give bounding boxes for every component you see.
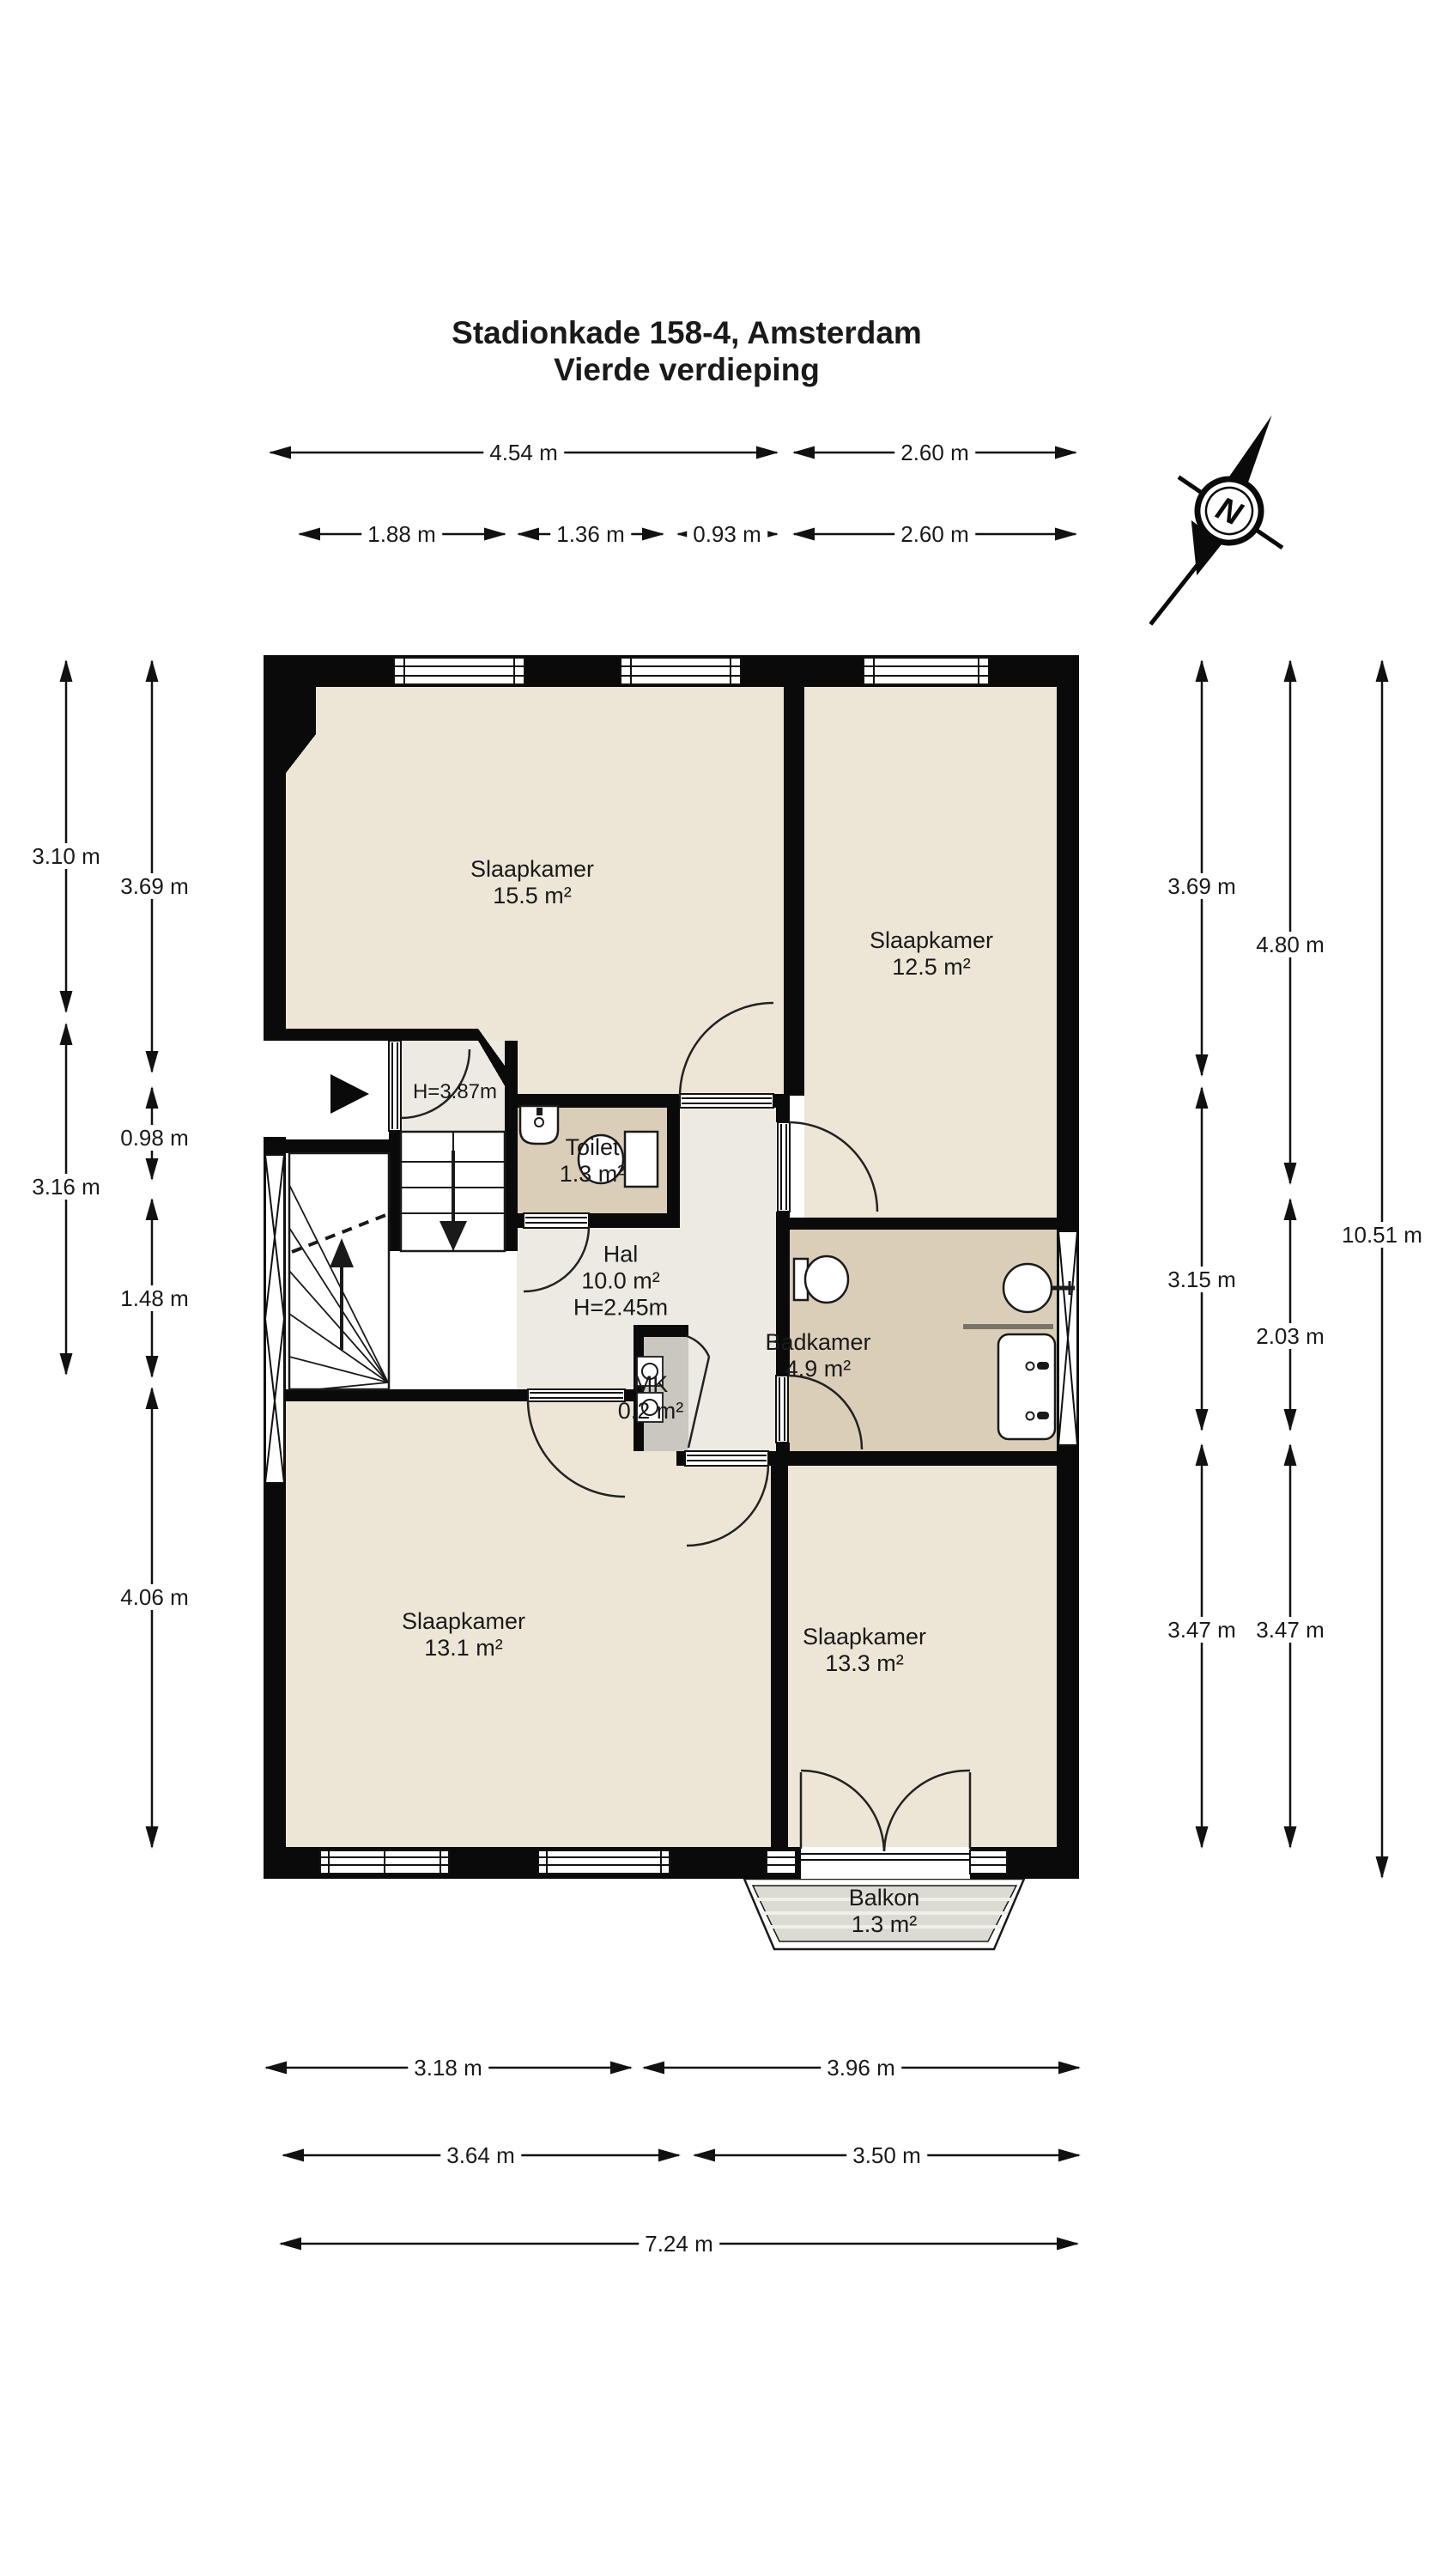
dim-left-369: 3.69 m: [114, 873, 195, 899]
room-height: H=2.45m: [573, 1295, 668, 1321]
bedroom-tr-door-frame: [778, 1122, 790, 1212]
bathroom-tub-icon: [998, 1334, 1055, 1439]
dim-top-136: 1.36 m: [550, 521, 631, 547]
compass-north-icon: N: [1119, 391, 1330, 660]
window-top-1: [394, 658, 524, 684]
dim-top-260b: 2.60 m: [894, 521, 975, 547]
room-name: MK: [618, 1371, 684, 1398]
balcony-door-opening: [801, 1847, 970, 1879]
window-bottom-4: [970, 1850, 1007, 1874]
dim-right-347a: 3.47 m: [1161, 1617, 1242, 1643]
dim-right-347b: 3.47 m: [1250, 1617, 1331, 1643]
room-label-mk: MK 0.2 m²: [618, 1371, 684, 1425]
dim-left-148: 1.48 m: [114, 1285, 195, 1311]
dim-right-315: 3.15 m: [1161, 1267, 1242, 1292]
dim-right-369: 3.69 m: [1161, 873, 1242, 899]
dim-right-480: 4.80 m: [1250, 932, 1331, 957]
dim-left-098: 0.98 m: [114, 1125, 195, 1151]
room-label-hal: Hal 10.0 m² H=2.45m: [573, 1242, 668, 1321]
room-area: 1.3 m²: [849, 1911, 920, 1938]
room-label-slaapkamer-tl: Slaapkamer 15.5 m²: [470, 856, 594, 909]
bedroom-tl-door-frame: [680, 1094, 773, 1108]
window-bottom-1: [320, 1850, 449, 1874]
front-door-frame: [389, 1041, 401, 1131]
room-area: 15.5 m²: [470, 883, 594, 909]
page-title: Stadionkade 158-4, Amsterdam: [452, 315, 922, 351]
window-left-shaft: [265, 1155, 284, 1483]
dim-top-188: 1.88 m: [361, 521, 442, 547]
window-bottom-2: [538, 1850, 670, 1874]
room-name: Slaapkamer: [470, 856, 594, 883]
room-label-slaapkamer-tr: Slaapkamer 12.5 m²: [870, 927, 993, 981]
bathroom-door-frame: [776, 1376, 788, 1443]
stair-height-annotation: H=3.87m: [413, 1080, 497, 1104]
room-name: Badkamer: [765, 1329, 870, 1356]
room-label-slaapkamer-bl: Slaapkamer 13.1 m²: [402, 1608, 525, 1662]
room-name: Hal: [573, 1242, 668, 1268]
page-subtitle: Vierde verdieping: [554, 352, 820, 388]
room-label-badkamer: Badkamer 4.9 m²: [765, 1329, 870, 1382]
room-name: Balkon: [849, 1885, 920, 1911]
room-area: 4.9 m²: [765, 1356, 870, 1382]
dim-top-260a: 2.60 m: [894, 440, 975, 465]
window-top-3: [864, 658, 989, 684]
room-area: 10.0 m²: [573, 1268, 668, 1295]
dim-right-203: 2.03 m: [1250, 1323, 1331, 1349]
toilet-door-frame: [524, 1213, 589, 1228]
window-right-shaft: [1058, 1231, 1077, 1445]
window-bottom-3: [767, 1850, 796, 1874]
window-top-2: [621, 658, 741, 684]
dim-left-406: 4.06 m: [114, 1584, 195, 1610]
room-area: 12.5 m²: [870, 954, 993, 981]
dim-top-454: 4.54 m: [483, 440, 564, 465]
room-name: Slaapkamer: [870, 927, 993, 954]
room-label-slaapkamer-br: Slaapkamer 13.3 m²: [803, 1624, 926, 1677]
dim-bottom-318: 3.18 m: [408, 2055, 488, 2081]
bathroom-wc-icon: [794, 1256, 848, 1303]
room-name: Toilet: [560, 1134, 626, 1161]
toilet-sink-icon: [520, 1106, 558, 1144]
room-name: Slaapkamer: [803, 1624, 926, 1650]
bedroom-br-door-frame: [685, 1451, 768, 1466]
dim-bottom-350: 3.50 m: [846, 2142, 927, 2168]
floorplan-page: N Stadionkade 158-4, Amsterdam Vierde ve…: [0, 0, 1449, 2576]
dim-bottom-364: 3.64 m: [440, 2142, 521, 2168]
dim-left-310: 3.10 m: [26, 843, 106, 869]
bedroom-bl-door-frame: [528, 1389, 625, 1401]
dim-top-093: 0.93 m: [687, 521, 767, 547]
room-area: 13.3 m²: [803, 1650, 926, 1677]
dim-left-316: 3.16 m: [26, 1174, 106, 1200]
bathroom-towel-bar: [963, 1324, 1053, 1329]
room-label-balkon: Balkon 1.3 m²: [849, 1885, 920, 1938]
dim-bottom-724: 7.24 m: [639, 2231, 719, 2257]
dim-right-1051: 10.51 m: [1336, 1222, 1428, 1248]
room-name: Slaapkamer: [402, 1608, 525, 1635]
room-label-toilet: Toilet 1.3 m²: [560, 1134, 626, 1188]
room-fills: [281, 687, 1057, 1847]
room-area: 0.2 m²: [618, 1398, 684, 1425]
room-area: 1.3 m²: [560, 1161, 626, 1188]
room-area: 13.1 m²: [402, 1635, 525, 1662]
dim-bottom-396: 3.96 m: [821, 2055, 901, 2081]
